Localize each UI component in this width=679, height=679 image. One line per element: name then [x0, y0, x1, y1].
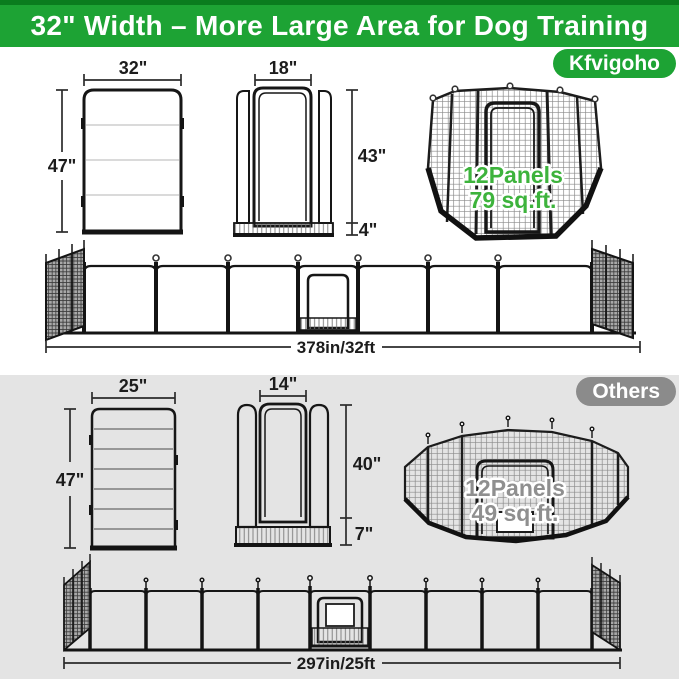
brand-pen-panels-label: 12Panels — [463, 162, 563, 188]
others-pen-area-label: 49 sq.ft. — [472, 500, 559, 526]
brand-pen-area-label: 79 sq.ft. — [470, 187, 557, 213]
others-bottom-bar-label: 7" — [355, 524, 374, 544]
brand-panel-diagram: 32" 47" — [48, 58, 184, 232]
others-door-width-label: 14" — [269, 374, 298, 394]
brand-panel-width-label: 32" — [119, 58, 148, 78]
brand-row-length-label: 378in/32ft — [297, 338, 376, 357]
brand-bottom-bar-label: 4" — [359, 220, 378, 240]
dimension-diagrams: 32" 47" 18" — [0, 0, 679, 679]
brand-pen-illustration: 12Panels 79 sq.ft. — [428, 83, 601, 238]
others-door-height-label: 40" — [353, 454, 382, 474]
others-door-diagram: 14" 40" 7" — [234, 374, 381, 545]
others-panel-height-label: 47" — [56, 470, 85, 490]
others-panel-width-label: 25" — [119, 376, 148, 396]
brand-door-height-label: 43" — [358, 146, 387, 166]
brand-door-width-label: 18" — [269, 58, 298, 78]
others-panel-diagram: 25" 47" — [56, 376, 178, 548]
others-panel-row: 297in/25ft — [64, 554, 622, 673]
others-pen-panels-label: 12Panels — [465, 475, 565, 501]
brand-door-diagram: 18" 43" 4" — [233, 58, 386, 240]
others-row-length-label: 297in/25ft — [297, 654, 376, 673]
product-comparison-image: 32" Width – More Large Area for Dog Trai… — [0, 0, 679, 679]
others-pen-illustration: 12Panels 49 sq.ft. — [405, 416, 628, 541]
brand-panel-row: 378in/32ft — [46, 240, 640, 357]
brand-panel-height-label: 47" — [48, 156, 77, 176]
